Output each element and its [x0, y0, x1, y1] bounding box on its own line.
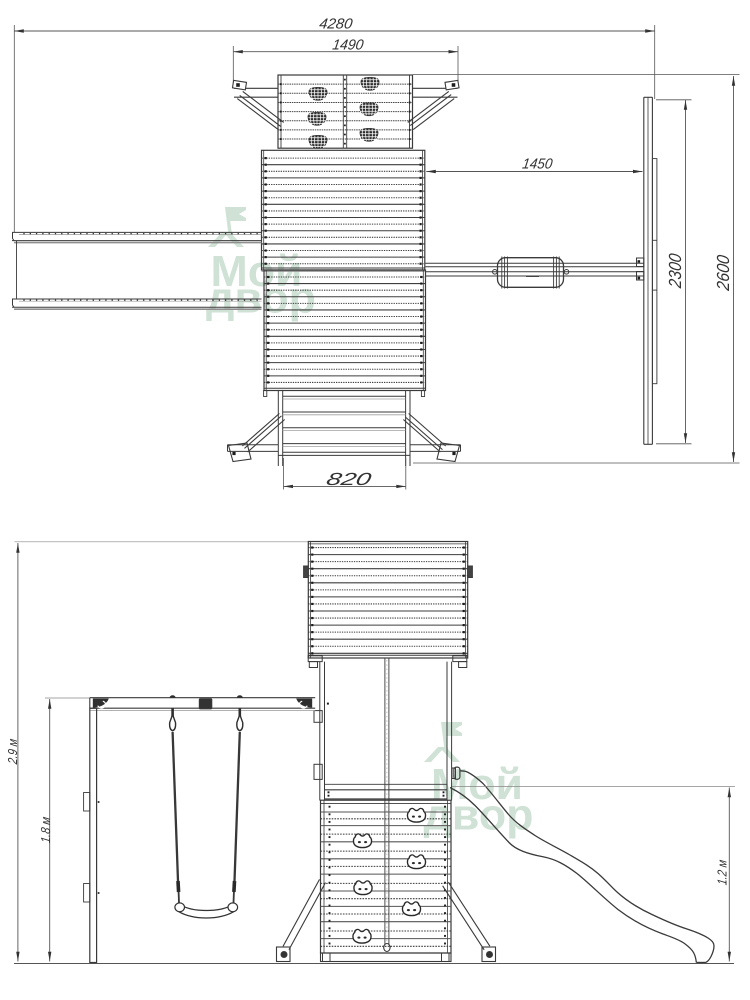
svg-text:2.9 м: 2.9 м: [5, 738, 20, 766]
svg-text:2300: 2300: [665, 252, 685, 290]
svg-text:1.2 м: 1.2 м: [714, 859, 729, 886]
svg-text:двор: двор: [206, 274, 316, 323]
svg-text:820: 820: [324, 469, 373, 489]
svg-text:2600: 2600: [713, 254, 733, 293]
svg-text:1.8 м: 1.8 м: [38, 816, 53, 844]
svg-text:4280: 4280: [318, 16, 353, 32]
svg-text:1450: 1450: [521, 156, 553, 172]
svg-text:двор: двор: [424, 791, 534, 840]
svg-text:1490: 1490: [331, 37, 364, 53]
